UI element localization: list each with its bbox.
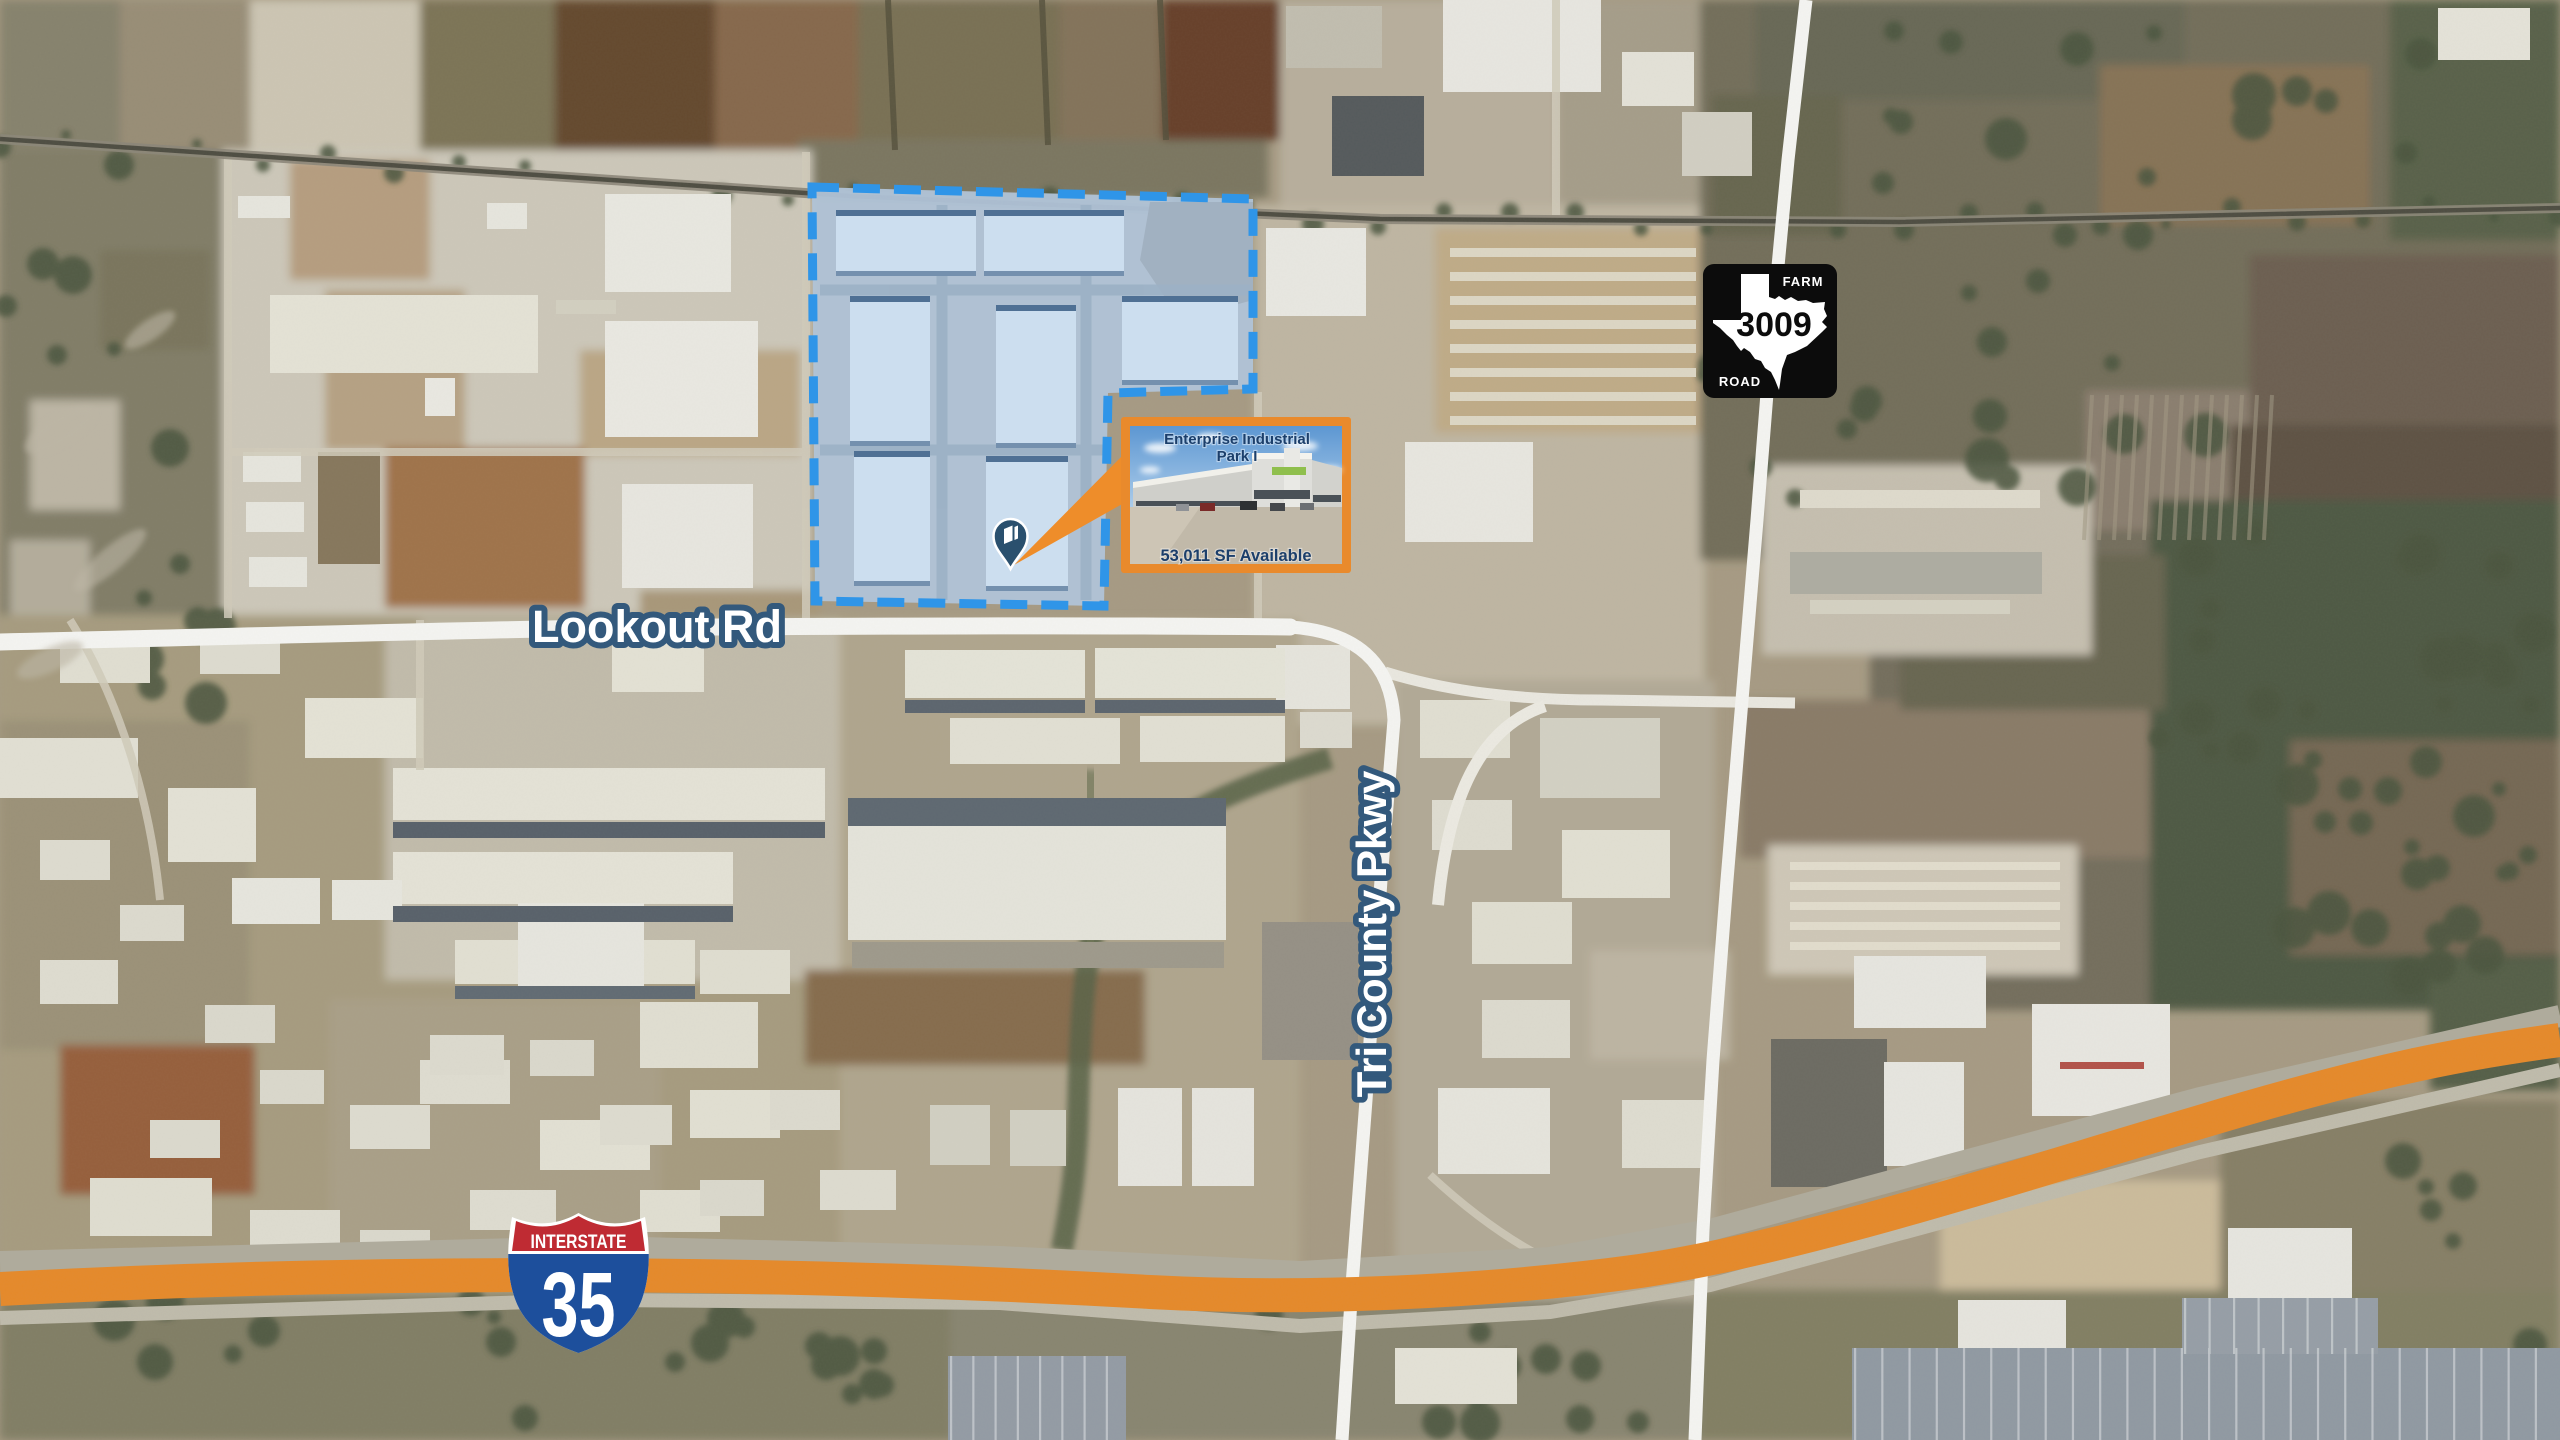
svg-text:ROAD: ROAD	[1719, 374, 1761, 389]
svg-text:Enterprise Industrial: Enterprise Industrial	[1164, 431, 1310, 448]
svg-text:53,011 SF Available: 53,011 SF Available	[1160, 547, 1311, 565]
svg-text:35: 35	[542, 1254, 616, 1356]
svg-text:FARM: FARM	[1783, 274, 1824, 289]
svg-text:Tri County Pkwy: Tri County Pkwy	[1348, 770, 1395, 1097]
svg-text:INTERSTATE: INTERSTATE	[531, 1232, 627, 1253]
svg-text:3009: 3009	[1736, 306, 1812, 344]
svg-text:Lookout Rd: Lookout Rd	[532, 601, 782, 652]
svg-text:Park I: Park I	[1217, 448, 1258, 465]
